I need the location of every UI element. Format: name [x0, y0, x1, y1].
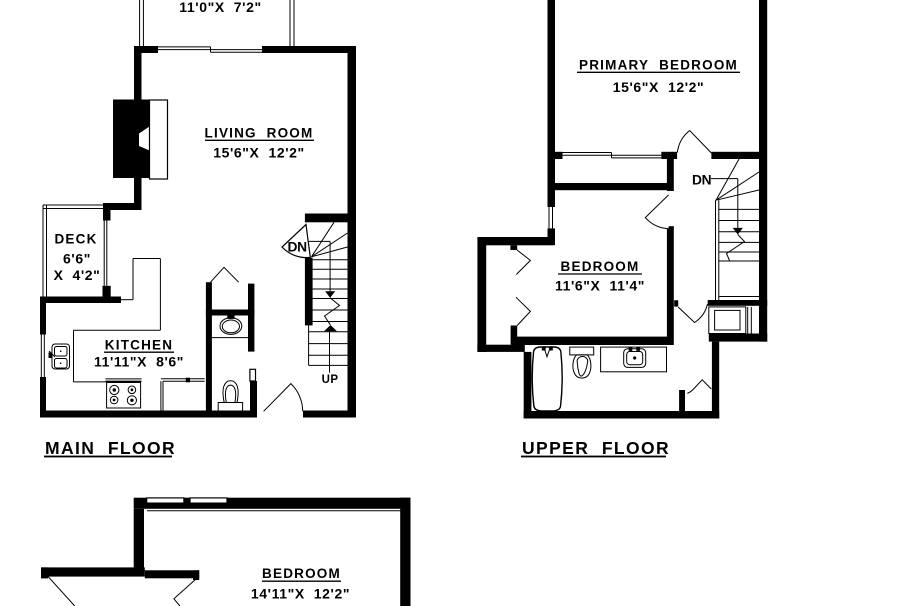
svg-text:PRIMARY BEDROOM: PRIMARY BEDROOM — [579, 58, 738, 73]
svg-text:UP: UP — [322, 374, 339, 386]
svg-text:11'6"X 11'4": 11'6"X 11'4" — [555, 278, 645, 294]
svg-text:LIVING ROOM: LIVING ROOM — [205, 126, 314, 141]
svg-text:6'6": 6'6" — [63, 251, 91, 267]
svg-text:MAIN FLOOR: MAIN FLOOR — [45, 438, 176, 458]
svg-text:11'0"X 7'2": 11'0"X 7'2" — [179, 0, 261, 15]
svg-text:DN: DN — [692, 173, 712, 188]
svg-text:UPPER FLOOR: UPPER FLOOR — [522, 438, 670, 458]
svg-text:DECK: DECK — [54, 232, 97, 247]
svg-text:15'6"X 12'2": 15'6"X 12'2" — [613, 79, 705, 95]
svg-text:BEDROOM: BEDROOM — [561, 259, 640, 274]
svg-text:DN: DN — [288, 240, 308, 255]
svg-text:11'11"X 8'6": 11'11"X 8'6" — [94, 354, 184, 370]
svg-text:BEDROOM: BEDROOM — [262, 566, 341, 581]
svg-text:14'11"X 12'2": 14'11"X 12'2" — [251, 585, 350, 601]
svg-text:KITCHEN: KITCHEN — [105, 338, 173, 353]
svg-text:15'6"X 12'2": 15'6"X 12'2" — [213, 145, 305, 161]
svg-text:X 4'2": X 4'2" — [54, 267, 101, 283]
